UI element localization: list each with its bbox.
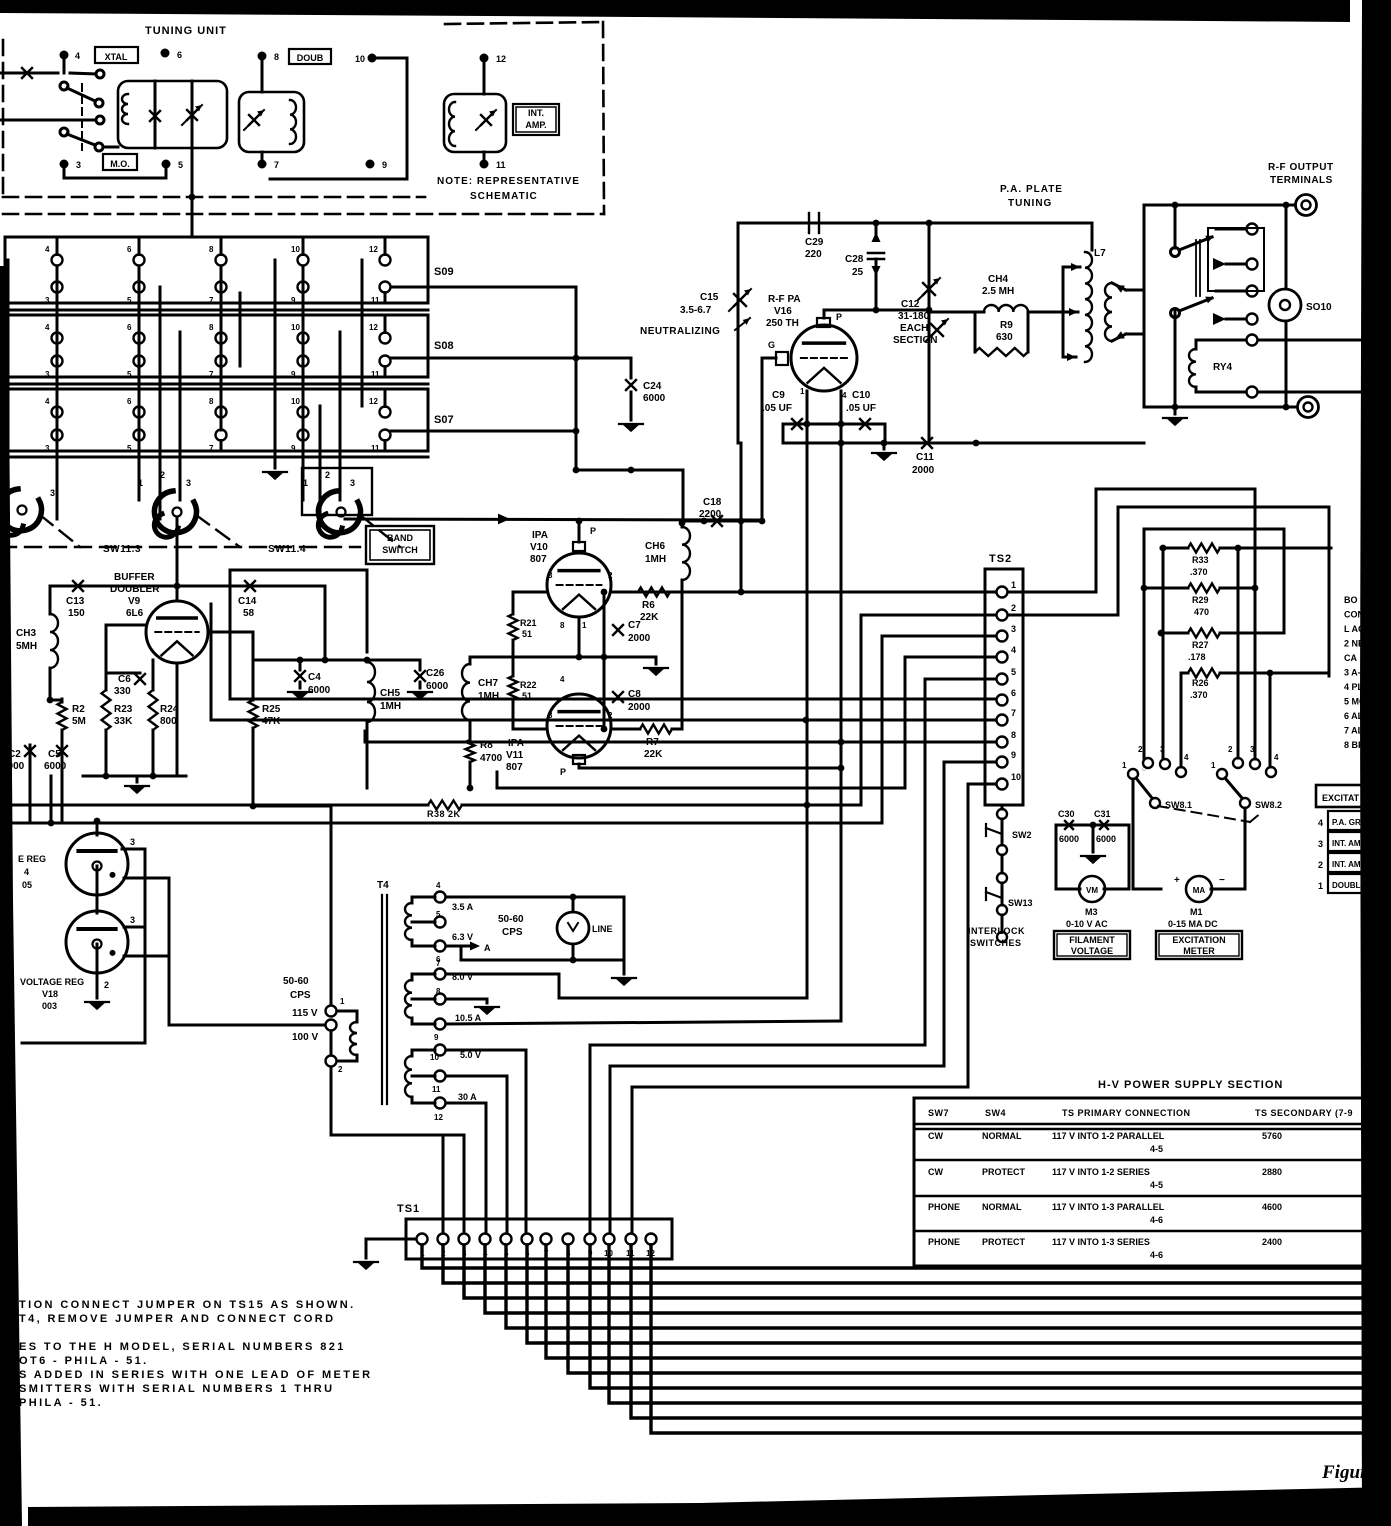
svg-text:6: 6 <box>127 323 132 332</box>
svg-text:1: 1 <box>1211 761 1216 770</box>
svg-text:SO10: SO10 <box>1306 302 1332 313</box>
svg-text:TUNING: TUNING <box>1008 198 1052 209</box>
svg-text:1: 1 <box>1318 881 1323 891</box>
svg-text:PROTECT: PROTECT <box>982 1237 1026 1247</box>
svg-text:11: 11 <box>371 296 380 305</box>
svg-text:6: 6 <box>127 245 132 254</box>
svg-text:CPS: CPS <box>502 927 523 938</box>
svg-text:7: 7 <box>209 370 214 379</box>
svg-text:INT. AMP: INT. AMP <box>1332 839 1367 848</box>
svg-text:C14: C14 <box>238 596 257 607</box>
svg-text:4-6: 4-6 <box>1150 1250 1163 1260</box>
svg-text:6: 6 <box>177 50 182 60</box>
svg-text:4: 4 <box>45 323 50 332</box>
svg-text:1MH: 1MH <box>645 554 666 565</box>
svg-text:6.3 V: 6.3 V <box>452 932 473 942</box>
svg-text:6L6: 6L6 <box>126 608 144 619</box>
svg-text:PHONE: PHONE <box>928 1237 960 1247</box>
svg-text:P: P <box>836 312 842 322</box>
svg-text:SW11.4: SW11.4 <box>268 544 306 555</box>
svg-text:50-60: 50-60 <box>283 976 309 987</box>
svg-text:30 A: 30 A <box>458 1092 477 1102</box>
svg-text:2: 2 <box>104 980 109 990</box>
svg-text:VOLTAGE: VOLTAGE <box>1071 946 1113 956</box>
svg-text:C13: C13 <box>66 596 85 607</box>
svg-text:4: 4 <box>45 245 50 254</box>
svg-text:S09: S09 <box>434 266 454 278</box>
svg-text:8 BR: 8 BR <box>1344 740 1365 750</box>
svg-text:800: 800 <box>160 716 177 727</box>
svg-text:NOTE: REPRESENTATIVE: NOTE: REPRESENTATIVE <box>437 176 580 187</box>
svg-text:CONT: CONT <box>1344 610 1370 620</box>
svg-text:CH3: CH3 <box>16 628 36 639</box>
svg-text:AMP.: AMP. <box>525 120 546 130</box>
svg-text:630: 630 <box>996 332 1013 343</box>
svg-text:4700: 4700 <box>480 753 503 764</box>
svg-text:5 MO: 5 MO <box>1344 697 1366 707</box>
svg-text:C6: C6 <box>118 674 131 685</box>
svg-text:10: 10 <box>291 397 300 406</box>
svg-text:LINE: LINE <box>592 924 613 934</box>
svg-text:6000: 6000 <box>643 393 666 404</box>
svg-text:DOUBLE: DOUBLE <box>1332 881 1366 890</box>
svg-text:6000: 6000 <box>1059 834 1079 844</box>
svg-text:SW8.1: SW8.1 <box>1165 800 1192 810</box>
svg-text:2.5 MH: 2.5 MH <box>982 286 1014 297</box>
svg-text:CW: CW <box>928 1131 943 1141</box>
svg-text:2: 2 <box>1011 603 1016 613</box>
svg-text:TUNING UNIT: TUNING UNIT <box>145 25 227 37</box>
svg-text:R33: R33 <box>1192 555 1209 565</box>
svg-text:3: 3 <box>1250 745 1255 754</box>
svg-text:SMITTERS WITH SERIAL NUMBER: SMITTERS WITH SERIAL NUMBERS 1 THRU <box>19 1383 334 1395</box>
svg-text:R2: R2 <box>72 704 85 715</box>
svg-text:11: 11 <box>371 444 380 453</box>
svg-text:3: 3 <box>50 488 55 498</box>
svg-text:R7: R7 <box>646 737 659 748</box>
svg-text:SW11.3: SW11.3 <box>103 544 141 555</box>
svg-text:TERMINALS: TERMINALS <box>1270 175 1333 186</box>
svg-text:V18: V18 <box>42 989 58 999</box>
svg-text:.05 UF: .05 UF <box>846 403 876 414</box>
svg-text:T4, REMOVE JUMPER AND CONNE: T4, REMOVE JUMPER AND CONNECT CORD <box>19 1313 336 1325</box>
svg-text:EACH: EACH <box>900 323 928 334</box>
svg-text:OT6 - PHILA - 51.: OT6 - PHILA - 51. <box>19 1355 149 1367</box>
svg-text:NORMAL: NORMAL <box>982 1202 1022 1212</box>
svg-text:SECTION: SECTION <box>893 335 937 346</box>
svg-text:R8: R8 <box>480 740 493 751</box>
svg-text:117 V INTO 1-3 PARALLEL: 117 V INTO 1-3 PARALLEL <box>1052 1202 1165 1212</box>
svg-text:SW2: SW2 <box>1012 830 1032 840</box>
svg-text:3.5 A: 3.5 A <box>452 902 474 912</box>
svg-text:C30: C30 <box>1058 809 1075 819</box>
svg-text:0-10 V AC: 0-10 V AC <box>1066 919 1108 929</box>
svg-text:C29: C29 <box>805 237 824 248</box>
svg-text:58: 58 <box>243 608 255 619</box>
svg-text:10: 10 <box>291 323 300 332</box>
svg-text:S08: S08 <box>434 340 454 352</box>
svg-text:33K: 33K <box>114 716 133 727</box>
svg-text:4: 4 <box>560 675 565 684</box>
svg-text:4 PL: 4 PL <box>1344 682 1364 692</box>
svg-text:1: 1 <box>340 997 345 1006</box>
svg-text:R23: R23 <box>114 704 133 715</box>
svg-text:C4: C4 <box>308 672 321 683</box>
svg-text:10: 10 <box>291 245 300 254</box>
svg-text:P: P <box>590 526 596 536</box>
svg-text:PHONE: PHONE <box>928 1202 960 1212</box>
svg-text:SW7: SW7 <box>928 1108 949 1118</box>
svg-text:7: 7 <box>274 160 279 170</box>
svg-text:CA: CA <box>1344 653 1357 663</box>
svg-text:TS PRIMARY CONNECTION: TS PRIMARY CONNECTION <box>1062 1108 1191 1118</box>
svg-text:BUFFER: BUFFER <box>114 572 155 583</box>
svg-text:51: 51 <box>522 629 532 639</box>
svg-text:PHILA - 51.: PHILA - 51. <box>19 1397 103 1409</box>
svg-text:5MH: 5MH <box>16 641 37 652</box>
svg-text:5: 5 <box>1011 667 1016 677</box>
svg-text:2: 2 <box>325 470 330 480</box>
svg-text:8: 8 <box>274 52 279 62</box>
svg-text:.05 UF: .05 UF <box>762 403 792 414</box>
svg-text:MA: MA <box>1193 886 1206 895</box>
svg-text:3: 3 <box>1318 839 1323 849</box>
svg-text:4: 4 <box>75 51 80 61</box>
svg-text:117 V INTO 1-2 SERIES: 117 V INTO 1-2 SERIES <box>1052 1167 1150 1177</box>
svg-text:1MH: 1MH <box>380 701 401 712</box>
svg-text:R26: R26 <box>1192 678 1209 688</box>
svg-text:V16: V16 <box>774 306 792 317</box>
svg-text:3: 3 <box>350 478 355 488</box>
svg-text:6000: 6000 <box>1096 834 1116 844</box>
svg-text:P.A. GRID: P.A. GRID <box>1332 818 1369 827</box>
svg-text:9: 9 <box>291 370 296 379</box>
svg-text:4: 4 <box>1184 753 1189 762</box>
svg-text:115 V: 115 V <box>292 1008 318 1019</box>
svg-text:6000: 6000 <box>426 681 449 692</box>
svg-text:1: 1 <box>1011 580 1016 590</box>
svg-text:11: 11 <box>496 160 506 170</box>
svg-text:C28: C28 <box>845 254 864 265</box>
svg-text:BO: BO <box>1344 595 1358 605</box>
svg-text:SW4: SW4 <box>985 1108 1006 1118</box>
svg-text:1MH: 1MH <box>478 691 499 702</box>
svg-text:7: 7 <box>209 444 214 453</box>
svg-text:5: 5 <box>178 160 183 170</box>
svg-text:22K: 22K <box>644 749 663 760</box>
svg-text:50-60: 50-60 <box>498 914 524 925</box>
svg-text:SCHEMATIC: SCHEMATIC <box>470 191 538 202</box>
svg-text:A: A <box>484 943 491 953</box>
svg-text:TION CONNECT JUMPER ON TS1: TION CONNECT JUMPER ON TS15 AS SHOWN. <box>19 1299 356 1311</box>
svg-text:2: 2 <box>1228 745 1233 754</box>
svg-text:P: P <box>560 767 566 777</box>
svg-text:CW: CW <box>928 1167 943 1177</box>
svg-text:SWITCHES: SWITCHES <box>970 938 1022 948</box>
svg-text:4-6: 4-6 <box>1150 1215 1163 1225</box>
svg-text:4: 4 <box>1274 753 1279 762</box>
svg-text:S07: S07 <box>434 414 454 426</box>
svg-text:3: 3 <box>45 296 50 305</box>
svg-text:2: 2 <box>1138 745 1143 754</box>
svg-text:C31: C31 <box>1094 809 1111 819</box>
svg-text:3.5-6.7: 3.5-6.7 <box>680 305 712 316</box>
svg-text:CH6: CH6 <box>645 541 665 552</box>
svg-text:9: 9 <box>291 444 296 453</box>
svg-text:3: 3 <box>130 837 135 847</box>
svg-text:7: 7 <box>436 959 441 968</box>
svg-text:CH4: CH4 <box>988 274 1008 285</box>
svg-text:R9: R9 <box>1000 320 1013 331</box>
svg-text:10: 10 <box>430 1053 439 1062</box>
svg-text:R25: R25 <box>262 704 281 715</box>
svg-text:9: 9 <box>382 160 387 170</box>
svg-text:G: G <box>768 340 775 350</box>
svg-text:R-F OUTPUT: R-F OUTPUT <box>1268 162 1334 173</box>
svg-text:EXCITAT: EXCITAT <box>1322 793 1360 803</box>
svg-text:CH5: CH5 <box>380 688 400 699</box>
svg-text:2000: 2000 <box>912 465 935 476</box>
svg-text:05: 05 <box>22 880 32 890</box>
svg-text:3: 3 <box>186 478 191 488</box>
svg-text:R22: R22 <box>520 680 537 690</box>
svg-text:2: 2 <box>608 571 613 580</box>
svg-text:P.A. PLATE: P.A. PLATE <box>1000 184 1063 195</box>
svg-text:25: 25 <box>852 267 864 278</box>
svg-text:12: 12 <box>369 245 378 254</box>
svg-text:R38 2K: R38 2K <box>427 809 461 819</box>
svg-text:IPA: IPA <box>508 738 524 749</box>
svg-text:1: 1 <box>800 387 805 396</box>
svg-text:2200: 2200 <box>699 509 722 520</box>
svg-text:+: + <box>1174 875 1180 886</box>
svg-text:8: 8 <box>1011 730 1016 740</box>
svg-text:RY4: RY4 <box>1213 362 1233 373</box>
svg-text:DOUB: DOUB <box>297 53 324 63</box>
svg-text:EXCITATION: EXCITATION <box>1172 935 1225 945</box>
svg-text:PROTECT: PROTECT <box>982 1167 1026 1177</box>
svg-text:8: 8 <box>209 397 214 406</box>
svg-text:807: 807 <box>530 554 547 565</box>
svg-text:807: 807 <box>506 762 523 773</box>
svg-text:3: 3 <box>45 444 50 453</box>
svg-text:12: 12 <box>369 397 378 406</box>
svg-text:R21: R21 <box>520 618 537 628</box>
svg-text:METER: METER <box>1183 946 1215 956</box>
svg-text:4: 4 <box>842 391 847 400</box>
svg-text:SW13: SW13 <box>1008 898 1033 908</box>
svg-text:3: 3 <box>548 571 553 580</box>
svg-text:5: 5 <box>436 910 441 919</box>
svg-text:ES TO THE H MODEL, SERIAL: ES TO THE H MODEL, SERIAL NUMBERS 821 <box>19 1341 346 1353</box>
svg-text:22K: 22K <box>640 612 659 623</box>
svg-text:4000: 4000 <box>2 761 25 772</box>
svg-text:.370: .370 <box>1190 567 1208 577</box>
svg-text:INTERLOCK: INTERLOCK <box>968 926 1025 936</box>
svg-text:8: 8 <box>436 987 441 996</box>
svg-text:150: 150 <box>68 608 85 619</box>
svg-text:1: 1 <box>138 478 143 488</box>
svg-text:4-5: 4-5 <box>1150 1144 1163 1154</box>
svg-text:4: 4 <box>1318 818 1323 828</box>
svg-text:SWITCH: SWITCH <box>382 545 418 555</box>
svg-text:8: 8 <box>209 245 214 254</box>
svg-text:C2: C2 <box>8 749 21 760</box>
svg-text:2880: 2880 <box>1262 1167 1282 1177</box>
svg-text:4-5: 4-5 <box>1150 1180 1163 1190</box>
svg-text:117 V INTO 1-3 SERIES: 117 V INTO 1-3 SERIES <box>1052 1237 1150 1247</box>
svg-text:C12: C12 <box>901 299 920 310</box>
svg-text:5: 5 <box>127 444 132 453</box>
svg-text:9: 9 <box>1011 750 1016 760</box>
svg-text:TS1: TS1 <box>397 1203 420 1215</box>
svg-text:TS SECONDARY (7-9: TS SECONDARY (7-9 <box>1255 1108 1353 1118</box>
svg-text:3 A-: 3 A- <box>1344 668 1361 678</box>
svg-text:11: 11 <box>371 370 380 379</box>
svg-text:1: 1 <box>1122 761 1127 770</box>
svg-text:5760: 5760 <box>1262 1131 1282 1141</box>
svg-text:T4: T4 <box>377 880 389 891</box>
svg-text:4: 4 <box>436 881 441 890</box>
svg-text:E REG: E REG <box>18 854 46 864</box>
svg-text:2: 2 <box>160 470 165 480</box>
svg-text:V9: V9 <box>128 596 141 607</box>
svg-text:100 V: 100 V <box>292 1032 318 1043</box>
svg-text:SW8.2: SW8.2 <box>1255 800 1282 810</box>
svg-text:6: 6 <box>127 397 132 406</box>
svg-text:C8: C8 <box>628 689 641 700</box>
svg-text:6000: 6000 <box>308 685 331 696</box>
svg-text:M1: M1 <box>1190 907 1203 917</box>
svg-text:INT.: INT. <box>528 108 544 118</box>
svg-text:4600: 4600 <box>1262 1202 1282 1212</box>
svg-text:R6: R6 <box>642 600 655 611</box>
svg-text:10: 10 <box>355 54 365 64</box>
svg-text:L AC: L AC <box>1344 624 1365 634</box>
svg-text:3: 3 <box>76 160 81 170</box>
svg-text:V10: V10 <box>530 542 548 553</box>
svg-text:R27: R27 <box>1192 640 1209 650</box>
svg-text:7: 7 <box>209 296 214 305</box>
svg-text:TS2: TS2 <box>989 553 1012 565</box>
svg-text:5: 5 <box>127 296 132 305</box>
svg-text:C26: C26 <box>426 668 445 679</box>
svg-text:12: 12 <box>434 1113 443 1122</box>
svg-text:XTAL: XTAL <box>105 52 128 62</box>
svg-text:VOLTAGE REG: VOLTAGE REG <box>20 977 84 987</box>
svg-text:330: 330 <box>114 686 131 697</box>
svg-text:S ADDED IN SERIES WITH ON: S ADDED IN SERIES WITH ONE LEAD OF METER <box>19 1369 373 1381</box>
svg-text:11: 11 <box>432 1085 441 1094</box>
svg-text:2400: 2400 <box>1262 1237 1282 1247</box>
svg-text:2 NE: 2 NE <box>1344 639 1364 649</box>
svg-text:117 V INTO 1-2 PARALLEL: 117 V INTO 1-2 PARALLEL <box>1052 1131 1165 1141</box>
svg-text:3: 3 <box>1011 624 1016 634</box>
svg-text:Figure: Figure <box>1321 1462 1376 1483</box>
svg-text:8: 8 <box>560 621 565 630</box>
svg-text:R-F PA: R-F PA <box>768 294 801 305</box>
svg-text:C24: C24 <box>643 381 662 392</box>
svg-text:BAND: BAND <box>387 533 413 543</box>
svg-text:2: 2 <box>608 711 613 720</box>
svg-text:220: 220 <box>805 249 822 260</box>
svg-text:0-15 MA DC: 0-15 MA DC <box>1168 919 1218 929</box>
svg-text:−: − <box>1219 875 1225 886</box>
svg-text:12: 12 <box>496 54 506 64</box>
svg-text:C5: C5 <box>48 749 61 760</box>
svg-text:C9: C9 <box>772 390 785 401</box>
svg-text:250 TH: 250 TH <box>766 318 799 329</box>
svg-text:9: 9 <box>434 1033 439 1042</box>
svg-text:4: 4 <box>1011 645 1016 655</box>
svg-text:NEUTRALIZING: NEUTRALIZING <box>640 326 720 337</box>
svg-text:6 AL: 6 AL <box>1344 711 1364 721</box>
svg-text:CH7: CH7 <box>478 678 498 689</box>
svg-text:H-V POWER SUPPLY SECTION: H-V POWER SUPPLY SECTION <box>1098 1079 1283 1091</box>
svg-text:10.5 A: 10.5 A <box>455 1013 482 1023</box>
svg-text:6: 6 <box>1011 688 1016 698</box>
svg-text:CPS: CPS <box>290 990 311 1001</box>
svg-text:2: 2 <box>1318 860 1323 870</box>
svg-text:4: 4 <box>24 867 29 877</box>
svg-text:003: 003 <box>42 1001 57 1011</box>
svg-text:31-180: 31-180 <box>898 311 930 322</box>
svg-text:M3: M3 <box>1085 907 1098 917</box>
svg-text:51: 51 <box>522 691 532 701</box>
svg-text:L7: L7 <box>1094 248 1106 259</box>
svg-text:4: 4 <box>45 397 50 406</box>
svg-text:3: 3 <box>130 915 135 925</box>
svg-text:C18: C18 <box>703 497 722 508</box>
svg-text:5: 5 <box>127 370 132 379</box>
svg-text:C10: C10 <box>852 390 871 401</box>
svg-text:3: 3 <box>45 370 50 379</box>
svg-text:2000: 2000 <box>628 702 651 713</box>
svg-text:5M: 5M <box>72 716 86 727</box>
svg-text:3: 3 <box>548 711 553 720</box>
svg-text:IPA: IPA <box>532 530 548 541</box>
svg-text:12: 12 <box>369 323 378 332</box>
svg-text:VM: VM <box>1086 886 1098 895</box>
svg-text:C15: C15 <box>700 292 719 303</box>
svg-text:7 AL: 7 AL <box>1344 726 1364 736</box>
svg-text:2: 2 <box>338 1065 343 1074</box>
svg-text:NORMAL: NORMAL <box>982 1131 1022 1141</box>
svg-text:V11: V11 <box>506 750 524 761</box>
svg-text:M.O.: M.O. <box>110 159 130 169</box>
svg-text:R29: R29 <box>1192 595 1209 605</box>
svg-text:1: 1 <box>303 478 308 488</box>
svg-text:INT. AMP: INT. AMP <box>1332 860 1367 869</box>
svg-text:10: 10 <box>1011 772 1021 782</box>
svg-text:9: 9 <box>291 296 296 305</box>
svg-text:1: 1 <box>582 621 587 630</box>
svg-text:470: 470 <box>1194 607 1209 617</box>
svg-text:7: 7 <box>1011 708 1016 718</box>
svg-text:2000: 2000 <box>628 633 651 644</box>
svg-text:.178: .178 <box>1188 652 1206 662</box>
svg-text:FILAMENT: FILAMENT <box>1069 935 1115 945</box>
svg-text:.370: .370 <box>1190 690 1208 700</box>
svg-text:C11: C11 <box>916 452 934 463</box>
svg-text:8: 8 <box>209 323 214 332</box>
